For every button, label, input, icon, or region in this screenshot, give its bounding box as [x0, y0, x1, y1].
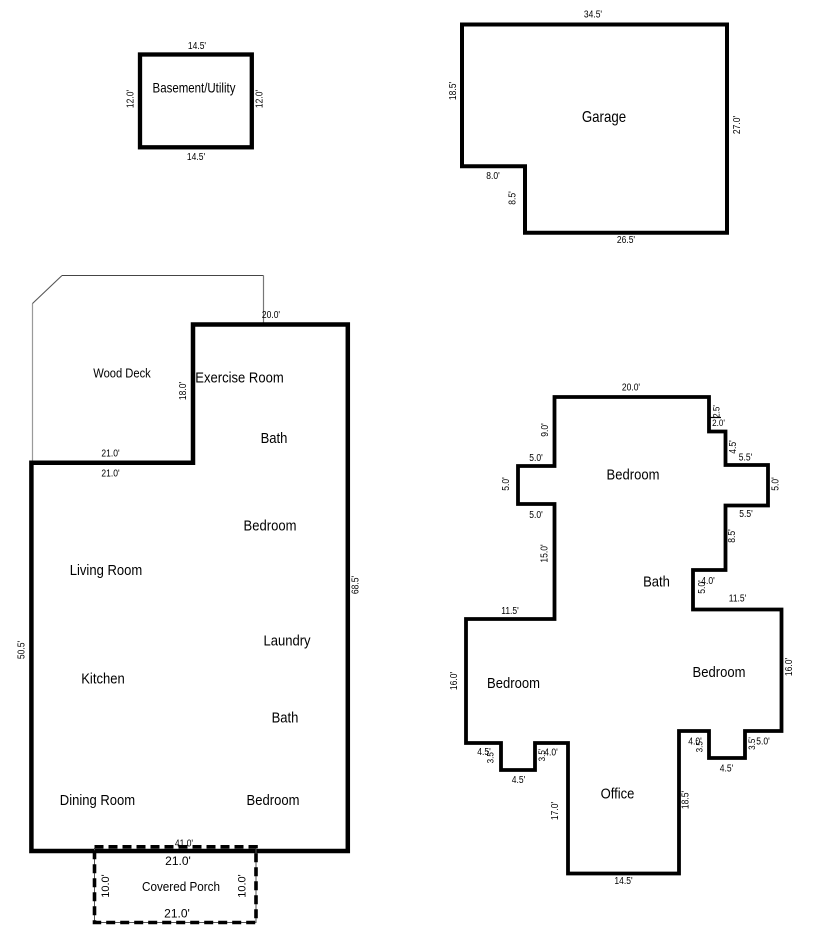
svg-text:Wood Deck: Wood Deck [93, 365, 151, 380]
svg-text:4.0': 4.0' [544, 747, 558, 758]
svg-text:Exercise Room: Exercise Room [195, 368, 283, 385]
svg-text:5.5': 5.5' [739, 452, 753, 463]
svg-text:14.5': 14.5' [187, 152, 205, 163]
svg-text:21.0': 21.0' [164, 907, 190, 921]
svg-text:34.5': 34.5' [584, 9, 602, 20]
svg-text:3.5': 3.5' [694, 739, 705, 752]
svg-text:8.5': 8.5' [507, 191, 518, 205]
svg-text:10.0': 10.0' [100, 874, 112, 898]
svg-text:8.5': 8.5' [727, 529, 738, 543]
svg-text:5.0': 5.0' [529, 510, 543, 521]
svg-text:5.0': 5.0' [756, 736, 770, 747]
svg-text:12.0': 12.0' [125, 90, 136, 108]
svg-text:Garage: Garage [582, 109, 626, 126]
svg-text:12.0': 12.0' [254, 90, 265, 108]
svg-text:Bedroom: Bedroom [607, 465, 660, 482]
svg-text:Living Room: Living Room [70, 561, 142, 578]
svg-text:18.0': 18.0' [178, 382, 189, 400]
svg-text:Basement/Utility: Basement/Utility [153, 79, 236, 95]
svg-text:9.0': 9.0' [540, 423, 551, 437]
svg-text:Bedroom: Bedroom [487, 674, 540, 691]
svg-text:Covered Porch: Covered Porch [142, 880, 220, 895]
svg-text:Kitchen: Kitchen [81, 669, 124, 686]
svg-text:5.0': 5.0' [501, 477, 512, 491]
svg-text:21.0': 21.0' [101, 448, 119, 459]
svg-text:16.0': 16.0' [784, 658, 795, 676]
svg-text:4.5': 4.5' [512, 775, 526, 786]
svg-text:20.0': 20.0' [262, 310, 280, 321]
svg-text:3.5': 3.5' [485, 750, 496, 763]
svg-text:11.5': 11.5' [729, 593, 747, 604]
svg-text:2.0': 2.0' [712, 418, 725, 429]
svg-text:26.5': 26.5' [617, 235, 635, 246]
svg-text:Bedroom: Bedroom [693, 663, 746, 680]
svg-text:Dining Room: Dining Room [60, 791, 135, 808]
svg-text:15.0': 15.0' [539, 544, 550, 562]
svg-text:50.5': 50.5' [16, 641, 27, 659]
svg-text:18.5': 18.5' [448, 82, 459, 100]
svg-text:16.0': 16.0' [449, 672, 460, 690]
svg-text:2.5': 2.5' [711, 405, 722, 418]
svg-text:Bedroom: Bedroom [244, 516, 297, 533]
svg-text:20.0': 20.0' [622, 382, 640, 393]
svg-text:8.0': 8.0' [486, 171, 500, 182]
svg-text:14.5': 14.5' [614, 876, 632, 887]
svg-text:Office: Office [601, 784, 635, 801]
svg-text:Laundry: Laundry [263, 631, 310, 648]
svg-text:18.5': 18.5' [680, 791, 691, 809]
svg-text:5.5': 5.5' [739, 509, 753, 520]
svg-text:Bath: Bath [261, 429, 288, 446]
svg-text:10.0': 10.0' [237, 874, 249, 898]
svg-text:5.0': 5.0' [770, 477, 781, 491]
svg-text:Bath: Bath [272, 708, 299, 725]
svg-text:5.0': 5.0' [529, 453, 543, 464]
svg-text:5.0': 5.0' [697, 580, 708, 594]
svg-text:27.0': 27.0' [732, 116, 743, 134]
svg-text:14.5': 14.5' [188, 41, 206, 52]
svg-text:Bedroom: Bedroom [247, 791, 300, 808]
svg-text:21.0': 21.0' [101, 468, 119, 479]
svg-text:21.0': 21.0' [165, 854, 191, 868]
svg-text:4.5': 4.5' [720, 763, 734, 774]
svg-text:68.5': 68.5' [350, 576, 361, 594]
svg-text:Bath: Bath [643, 572, 670, 589]
svg-text:4.5': 4.5' [728, 440, 739, 454]
svg-text:11.5': 11.5' [501, 606, 519, 617]
svg-text:17.0': 17.0' [550, 802, 561, 820]
